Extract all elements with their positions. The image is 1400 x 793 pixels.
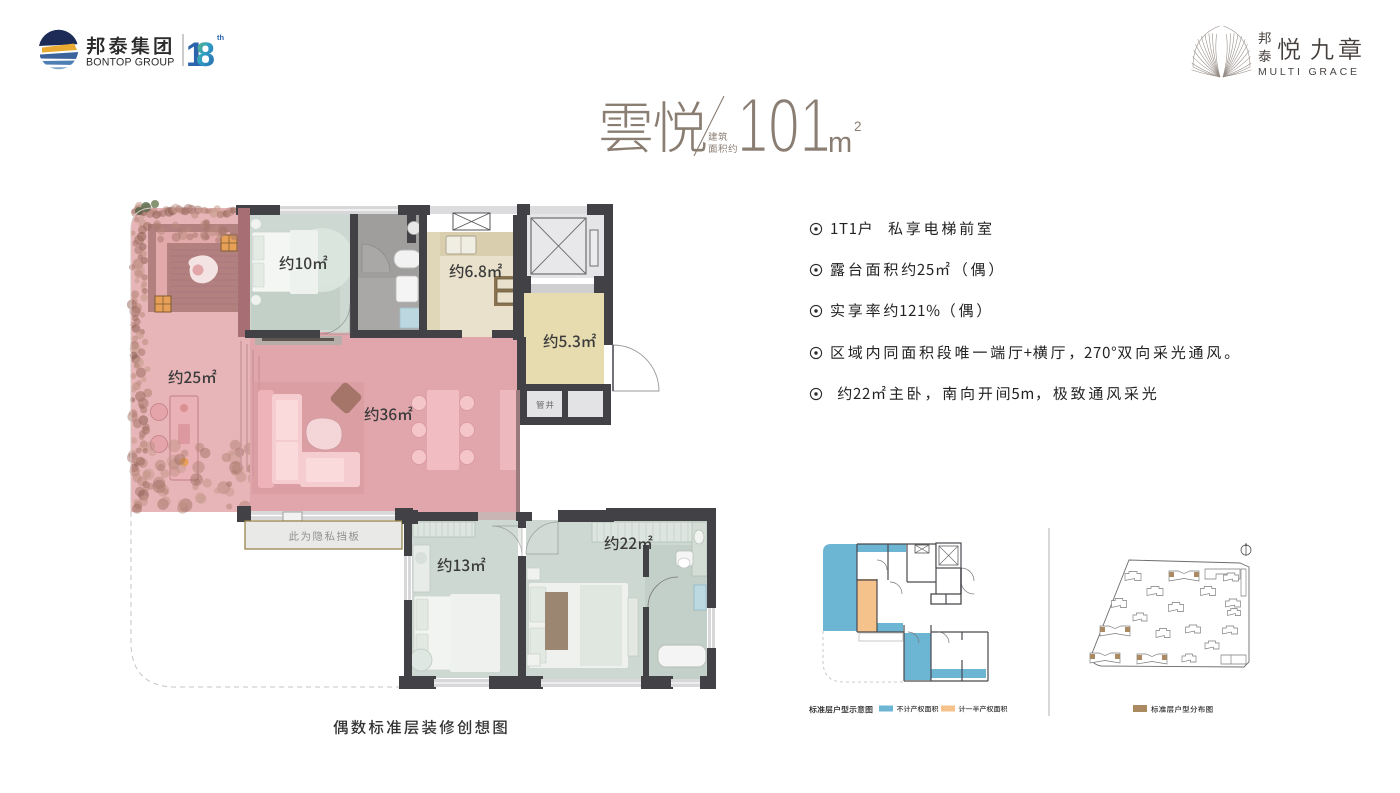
svg-text:MULTI GRACE: MULTI GRACE: [1258, 66, 1360, 78]
svg-text:th: th: [217, 33, 224, 42]
svg-text:BONTOP GROUP: BONTOP GROUP: [86, 57, 175, 69]
svg-text:m: m: [828, 127, 852, 159]
svg-text:2: 2: [854, 119, 862, 134]
svg-text:8: 8: [196, 36, 215, 74]
svg-text:101: 101: [737, 82, 831, 169]
